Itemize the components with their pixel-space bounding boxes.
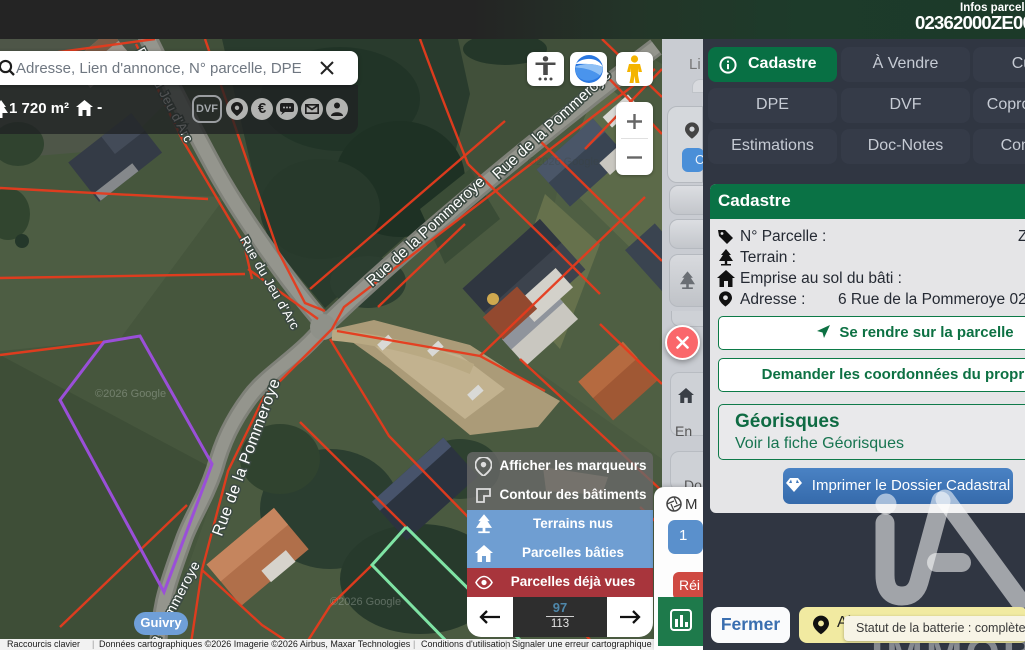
svg-text:©2026 Google: ©2026 Google <box>528 156 599 168</box>
svg-text:©2026 Google: ©2026 Google <box>330 596 401 608</box>
svg-text:©2026 Google: ©2026 Google <box>95 388 166 400</box>
